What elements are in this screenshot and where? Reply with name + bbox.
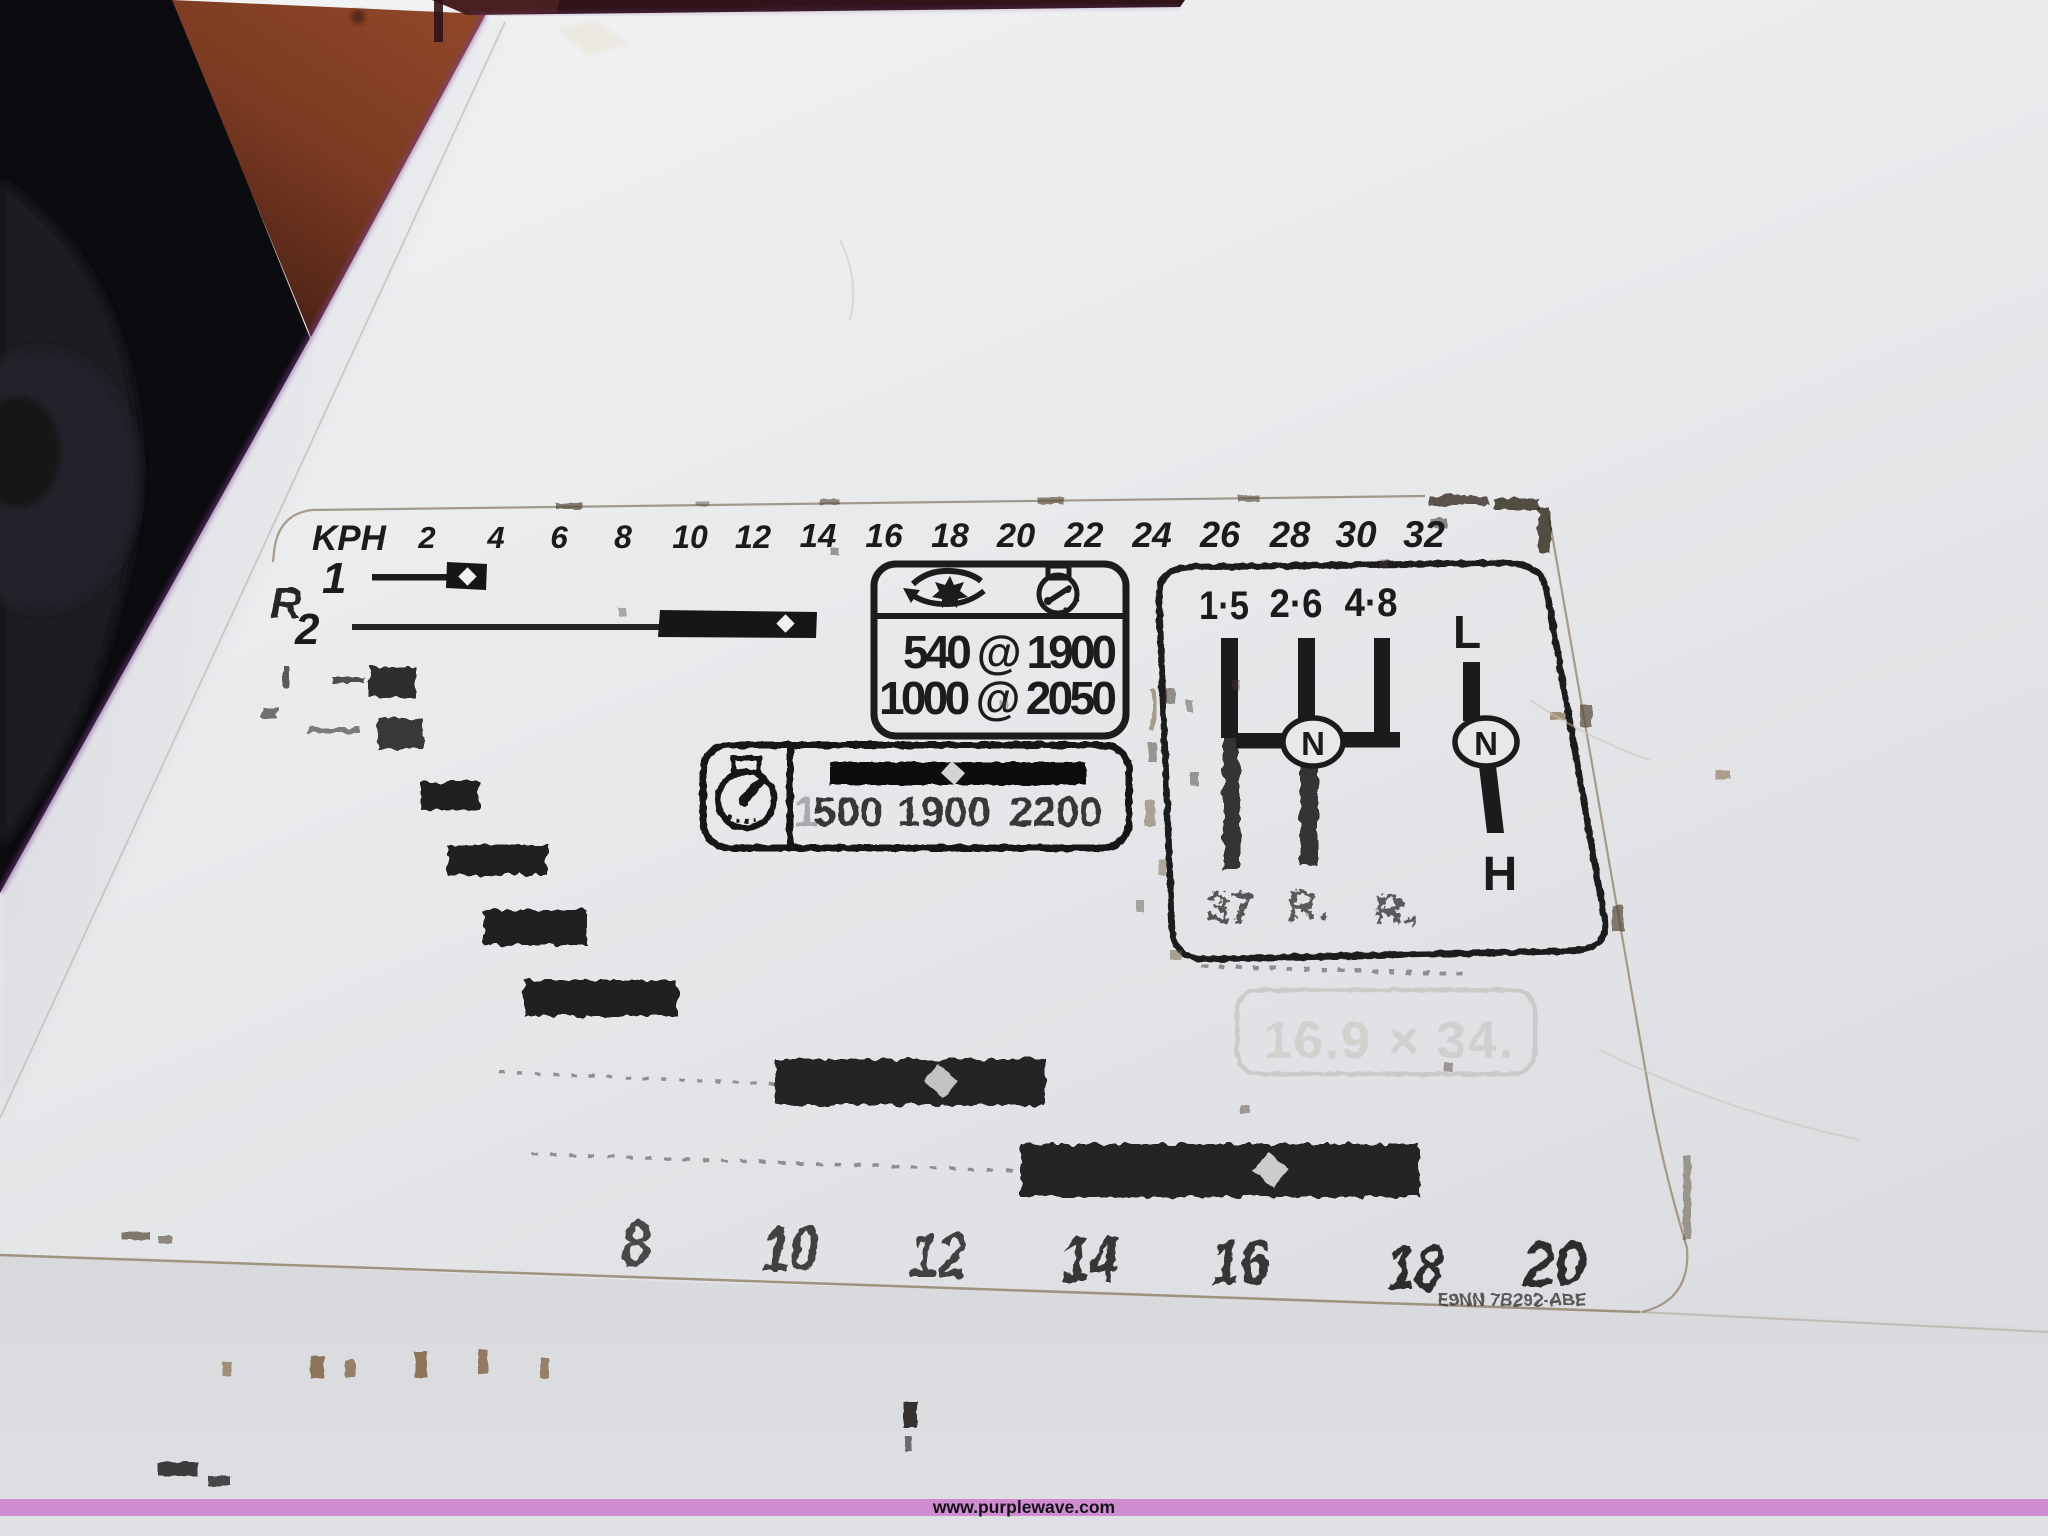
svg-text:2: 2 xyxy=(294,605,320,654)
svg-text:540 @ 1900: 540 @ 1900 xyxy=(903,626,1117,678)
svg-text:18: 18 xyxy=(931,517,969,555)
svg-text:30: 30 xyxy=(1335,514,1377,555)
svg-text:1·5: 1·5 xyxy=(1199,584,1249,628)
svg-text:32: 32 xyxy=(1403,513,1445,555)
svg-text:1: 1 xyxy=(322,554,346,603)
svg-text:1900: 1900 xyxy=(897,788,990,835)
svg-text:14: 14 xyxy=(1062,1223,1118,1295)
svg-text:2: 2 xyxy=(417,520,435,555)
svg-text:8: 8 xyxy=(614,519,632,555)
svg-text:37: 37 xyxy=(1207,884,1254,931)
svg-text:L: L xyxy=(1453,606,1481,658)
svg-text:20: 20 xyxy=(996,517,1035,555)
svg-text:500: 500 xyxy=(813,788,883,835)
svg-text:E9NN 7B292-ABE: E9NN 7B292-ABE xyxy=(1437,1290,1587,1310)
svg-text:18: 18 xyxy=(1387,1231,1443,1303)
svg-text:H: H xyxy=(1483,848,1518,901)
svg-text:1000 @ 2050: 1000 @ 2050 xyxy=(879,672,1117,724)
svg-text:24: 24 xyxy=(1131,515,1172,555)
svg-text:10: 10 xyxy=(672,519,708,555)
svg-text:16.9 × 34.: 16.9 × 34. xyxy=(1263,1012,1513,1070)
svg-text:KPH: KPH xyxy=(312,519,387,558)
svg-text:16: 16 xyxy=(1211,1226,1269,1298)
svg-text:2200: 2200 xyxy=(1009,788,1102,835)
svg-text:12: 12 xyxy=(910,1219,966,1291)
svg-text:www.purplewave.com: www.purplewave.com xyxy=(932,1497,1115,1517)
svg-text:2·6: 2·6 xyxy=(1270,582,1323,626)
svg-text:4·8: 4·8 xyxy=(1345,581,1398,625)
svg-text:28: 28 xyxy=(1269,514,1311,555)
svg-text:6: 6 xyxy=(550,519,568,555)
svg-text:16: 16 xyxy=(865,518,903,555)
svg-text:R.: R. xyxy=(1374,886,1416,933)
svg-text:R.: R. xyxy=(1287,882,1329,929)
svg-text:12: 12 xyxy=(735,519,771,555)
svg-text:N: N xyxy=(1301,725,1325,762)
svg-text:N: N xyxy=(1474,725,1498,762)
svg-text:22: 22 xyxy=(1064,516,1104,555)
svg-text:4: 4 xyxy=(486,520,504,555)
svg-text:10: 10 xyxy=(762,1213,818,1285)
svg-text:26: 26 xyxy=(1199,514,1241,555)
svg-text:8: 8 xyxy=(621,1208,651,1280)
